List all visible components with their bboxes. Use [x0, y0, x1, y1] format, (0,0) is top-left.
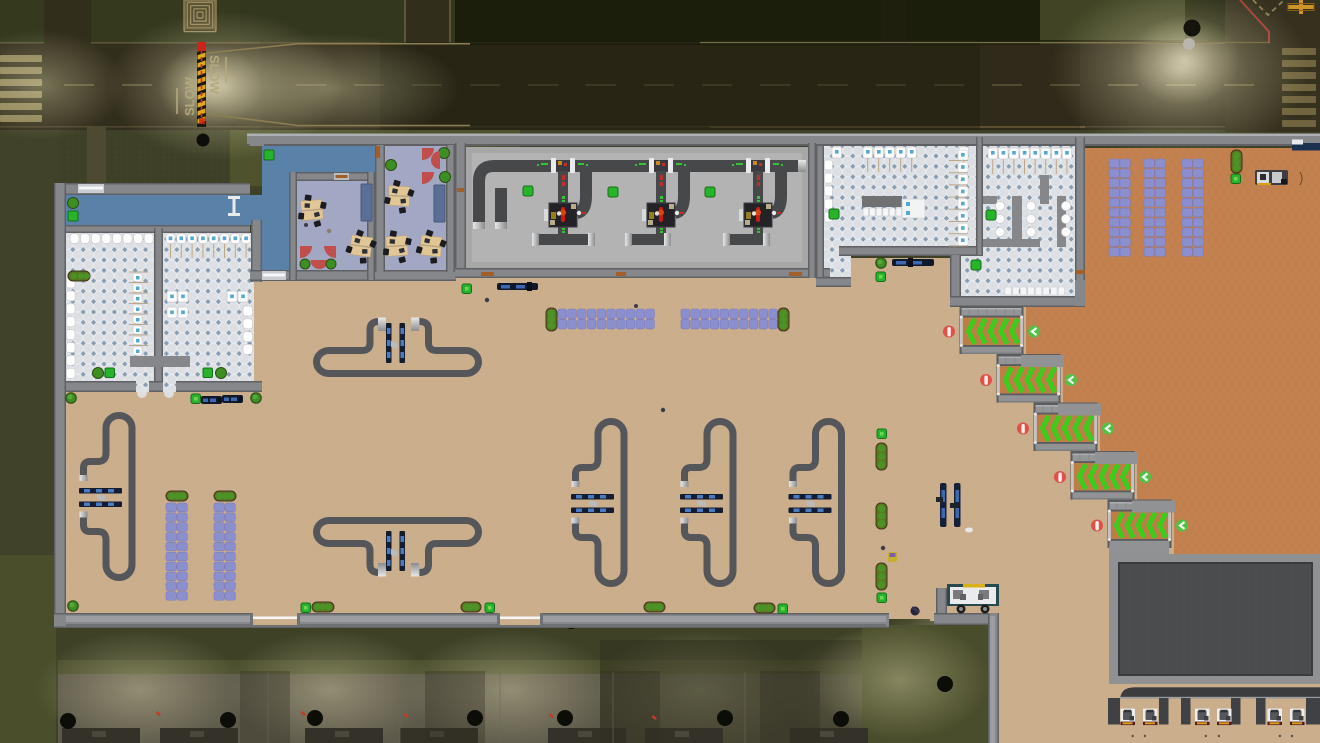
- svg-text:SLOW: SLOW: [182, 76, 197, 116]
- svg-text:SLOW: SLOW: [207, 55, 222, 95]
